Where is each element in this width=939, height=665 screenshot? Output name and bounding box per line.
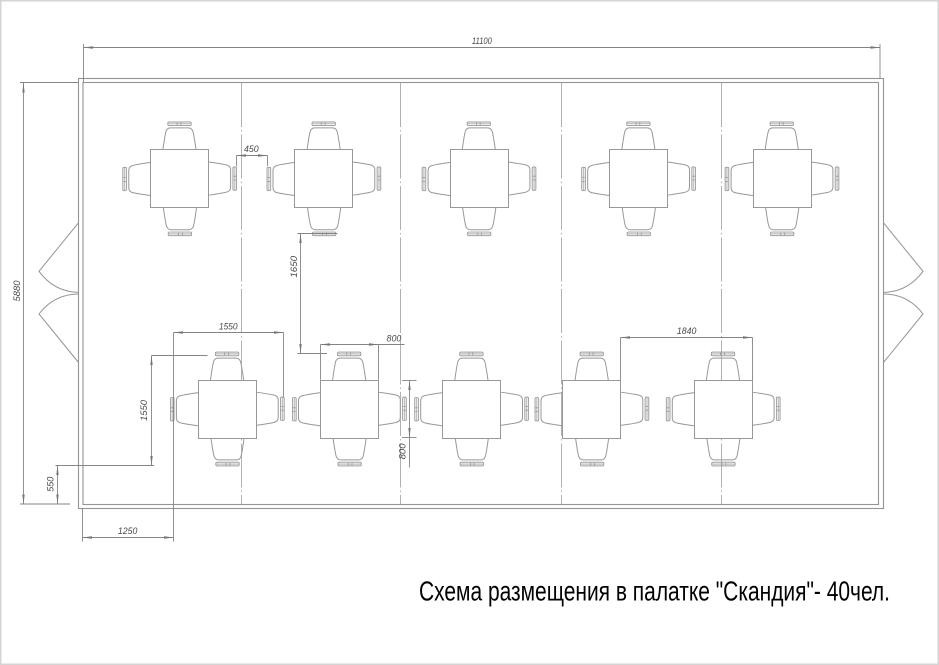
svg-text:1650: 1650 bbox=[289, 255, 299, 278]
svg-text:550: 550 bbox=[46, 476, 56, 492]
svg-text:450: 450 bbox=[244, 144, 259, 154]
svg-text:5880: 5880 bbox=[12, 280, 22, 302]
svg-text:800: 800 bbox=[387, 334, 402, 344]
svg-text:1550: 1550 bbox=[139, 399, 149, 421]
svg-text:1840: 1840 bbox=[677, 326, 697, 336]
svg-text:Схема размещения в палатке "Ск: Схема размещения в палатке "Скандия"- 40… bbox=[419, 576, 890, 607]
svg-text:800: 800 bbox=[398, 443, 408, 460]
svg-text:1550: 1550 bbox=[219, 322, 238, 332]
svg-text:1250: 1250 bbox=[118, 526, 138, 536]
svg-text:11100: 11100 bbox=[472, 36, 493, 46]
